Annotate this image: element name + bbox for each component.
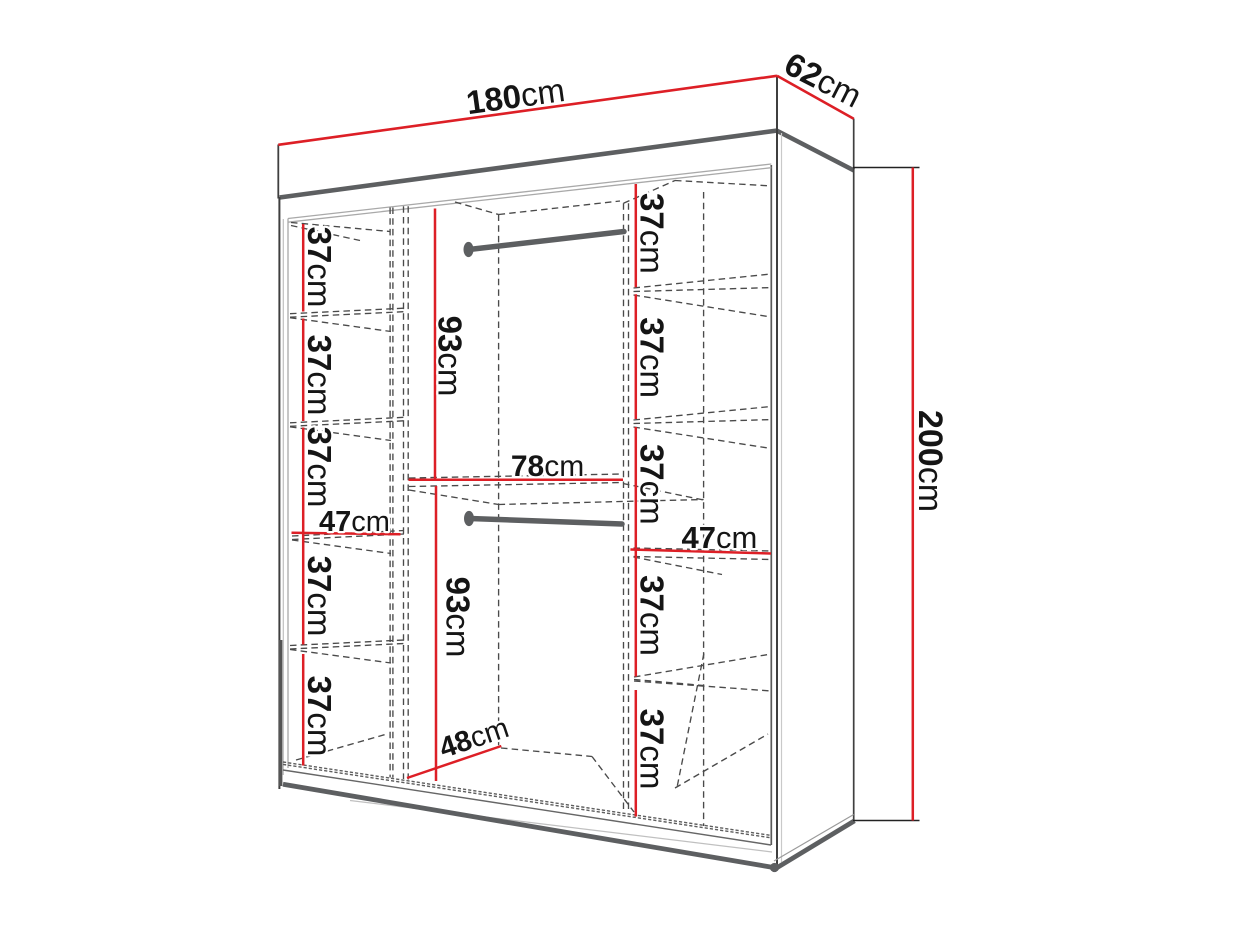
svg-text:37cm: 37cm <box>634 575 671 656</box>
svg-text:37cm: 37cm <box>634 317 671 398</box>
svg-text:47cm: 47cm <box>681 520 757 555</box>
svg-text:37cm: 37cm <box>634 193 671 274</box>
svg-text:93cm: 93cm <box>432 316 469 397</box>
svg-text:37cm: 37cm <box>301 227 338 308</box>
svg-text:47cm: 47cm <box>319 506 390 538</box>
svg-text:37cm: 37cm <box>301 676 338 757</box>
svg-text:37cm: 37cm <box>634 709 671 790</box>
svg-text:37cm: 37cm <box>301 556 338 637</box>
svg-text:200cm: 200cm <box>911 410 949 512</box>
svg-text:37cm: 37cm <box>301 427 338 508</box>
svg-text:78cm: 78cm <box>511 450 584 483</box>
svg-text:37cm: 37cm <box>634 444 671 525</box>
svg-text:93cm: 93cm <box>440 577 477 658</box>
svg-text:37cm: 37cm <box>301 335 338 416</box>
